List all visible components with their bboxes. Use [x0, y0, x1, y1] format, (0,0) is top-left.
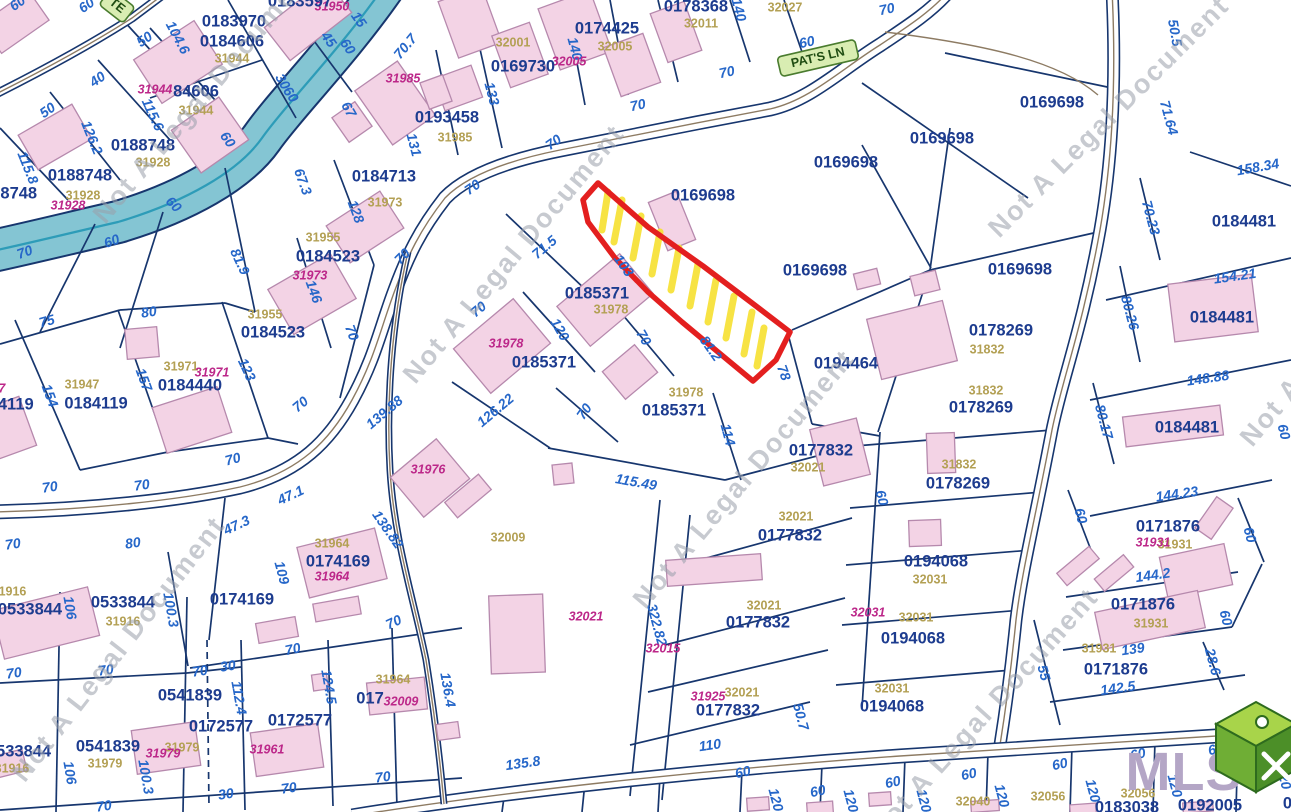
- parcel-id-label[interactable]: 0185371: [642, 401, 706, 419]
- dimension-label: 144.23: [1155, 483, 1200, 505]
- dimension-label: 70: [342, 323, 362, 343]
- address-label-magenta: 31947: [0, 381, 6, 395]
- parcel-boundary-line: [930, 128, 950, 270]
- dimension-label: 67.3: [291, 166, 315, 197]
- dimension-label: 47.1: [274, 482, 307, 509]
- dimension-label: 30: [219, 657, 237, 675]
- parcel-id-label[interactable]: 0541839: [158, 686, 222, 704]
- dimension-label: 70: [223, 449, 242, 469]
- dimension-label: 60: [808, 781, 827, 800]
- parcel-id-label[interactable]: 0169698: [910, 129, 974, 147]
- dimension-label: 80: [124, 534, 142, 552]
- dimension-label: 80: [140, 303, 158, 321]
- dimension-label: 28.6: [1202, 645, 1225, 677]
- address-label-magenta: 32015: [646, 641, 682, 655]
- parcel-id-label[interactable]: 0194068: [904, 552, 968, 570]
- building-footprint: [438, 0, 502, 58]
- address-label-magenta: 32021: [569, 609, 604, 623]
- building-footprint: [552, 463, 574, 485]
- parcel-boundary-line: [1232, 564, 1262, 627]
- building-footprint: [1070, 803, 1097, 812]
- dimension-label: 110: [698, 735, 723, 754]
- dimension-label: 50.7: [790, 701, 813, 733]
- subject-hatch-mark: [602, 192, 608, 230]
- building-footprint: [313, 596, 361, 622]
- building-footprint: [747, 797, 770, 812]
- parcel-boundary-line: [120, 303, 225, 310]
- parcel-id-label[interactable]: 0178269: [926, 474, 990, 492]
- parcel-id-label[interactable]: 0174425: [575, 19, 639, 37]
- address-label-tan: 32021: [791, 460, 826, 474]
- address-label-tan: 31931: [1134, 616, 1169, 630]
- address-label-tan: 31973: [368, 195, 403, 209]
- address-label-magenta: 31985: [386, 71, 422, 85]
- address-label-tan: 32056: [1031, 789, 1066, 803]
- parcel-boundary-line: [80, 452, 168, 470]
- dimension-label: 70: [633, 327, 655, 349]
- dimension-label: 123: [235, 355, 259, 383]
- parcel-boundary-line: [183, 597, 187, 812]
- address-label-magenta: 31973: [293, 268, 328, 282]
- subject-hatch-mark: [726, 296, 734, 338]
- address-label-tan: 32031: [899, 610, 934, 624]
- parcel-id-label[interactable]: 0169698: [783, 261, 847, 279]
- mls-logo: MLS: [1126, 702, 1291, 802]
- parcel-id-label[interactable]: 0184481: [1190, 308, 1254, 326]
- address-label-tan: 32021: [725, 685, 760, 699]
- dimension-label: 70: [628, 95, 647, 114]
- subject-hatch-mark: [744, 312, 752, 354]
- dimension-label: 60: [75, 0, 97, 16]
- parcel-id-label[interactable]: 0541839: [76, 737, 140, 755]
- parcel-id-label[interactable]: 0184523: [241, 323, 305, 341]
- dimension-label: 136.4: [437, 671, 459, 708]
- dimension-label: 70: [133, 476, 151, 494]
- building-footprint: [0, 0, 49, 53]
- dimension-label: 124.5: [318, 668, 340, 705]
- dimension-label: 70: [191, 662, 209, 680]
- parcel-id-label[interactable]: 0194068: [881, 629, 945, 647]
- building-footprint: [807, 801, 834, 812]
- address-label-tan: 32005: [598, 39, 633, 53]
- building-footprint: [853, 268, 880, 289]
- parcel-id-label[interactable]: 0184713: [352, 167, 416, 185]
- dimension-label: 120: [841, 787, 863, 812]
- dimension-label: 75: [37, 311, 56, 331]
- address-label-tan: 31978: [594, 302, 629, 316]
- address-label-tan: 31931: [1082, 641, 1117, 655]
- address-label-tan: 32040: [956, 794, 991, 808]
- dimension-label: 131: [404, 131, 426, 158]
- parcel-id-label[interactable]: 0169698: [814, 153, 878, 171]
- address-label-magenta: 31978: [489, 336, 524, 350]
- parcel-id-label[interactable]: 0533844: [0, 600, 63, 618]
- dimension-label: 133: [482, 80, 504, 107]
- dimension-label: 81.9: [227, 246, 253, 278]
- dimension-label: 114: [718, 422, 739, 448]
- parcel-id-label[interactable]: 0177832: [696, 701, 760, 719]
- dimension-label: 142.5: [1099, 677, 1136, 698]
- building-footprint: [492, 22, 548, 87]
- building-footprint: [867, 300, 958, 379]
- parcel-id-label[interactable]: 0172577: [268, 711, 332, 729]
- dimension-label: 154: [39, 382, 62, 410]
- parcel-id-label[interactable]: 0171876: [1111, 595, 1175, 613]
- building-footprint: [910, 270, 940, 296]
- parcel-id-label[interactable]: 0171876: [1084, 660, 1148, 678]
- parcel-boundary-line: [1070, 746, 1072, 812]
- address-label-tan: 32011: [684, 16, 718, 30]
- address-label-magenta: 31961: [250, 742, 285, 756]
- address-label-magenta: 31944: [138, 82, 173, 96]
- building-footprint: [909, 519, 942, 546]
- dimension-label: 40: [85, 68, 108, 91]
- building-footprint: [1057, 546, 1099, 585]
- address-label-tan: 31985: [438, 130, 473, 144]
- dimension-label: 70: [5, 664, 23, 682]
- parcel-id-label[interactable]: 0188748: [48, 166, 112, 184]
- dimension-label: 30: [217, 785, 235, 803]
- building-footprint: [152, 387, 232, 454]
- dimension-label: 106: [60, 760, 80, 786]
- parcel-boundary-line: [836, 670, 1012, 685]
- address-label-tan: 31955: [306, 230, 341, 244]
- dimension-label: 70.7: [390, 30, 421, 62]
- dimension-label: 70.23: [1139, 199, 1164, 237]
- parcel-id-label[interactable]: 0172577: [189, 717, 253, 735]
- dimension-label: 139.88: [363, 392, 406, 432]
- dimension-label: 109: [272, 559, 294, 586]
- dimension-label: 70: [95, 797, 113, 812]
- address-label-magenta: 31931: [1136, 535, 1171, 549]
- address-label-tan: 31979: [88, 756, 123, 770]
- parcel-boundary-line: [268, 438, 298, 444]
- address-label-tan: 31955: [248, 307, 283, 321]
- parcel-id-label[interactable]: 0177832: [789, 441, 853, 459]
- parcel-id-label[interactable]: 0185371: [565, 284, 629, 302]
- parcel-id-label[interactable]: 0178368: [664, 0, 728, 15]
- parcel-id-label[interactable]: 0169698: [1020, 93, 1084, 111]
- subject-hatch-mark: [652, 232, 660, 274]
- parcel-id-label[interactable]: 0185371: [512, 353, 576, 371]
- address-label-magenta: 32009: [384, 694, 419, 708]
- address-label-tan: 31964: [376, 672, 411, 686]
- dimension-label: 70: [280, 779, 298, 797]
- building-footprint: [602, 345, 657, 400]
- dimension-label: 126.22: [474, 390, 517, 430]
- parcel-map-canvas: 606050104.64050115.6126.2115.83045156060…: [0, 0, 1291, 812]
- parcel-id-label[interactable]: 0184119: [0, 395, 34, 413]
- subject-hatch-mark: [708, 280, 716, 322]
- address-label-tan: 31971: [164, 359, 199, 373]
- parcel-id-label[interactable]: 0174169: [306, 552, 370, 570]
- dimension-label: 70: [374, 768, 392, 786]
- parcel-id-label[interactable]: 0193458: [415, 108, 479, 126]
- parcel-id-label[interactable]: 0178269: [949, 398, 1013, 416]
- dimension-label: 80.17: [1092, 403, 1117, 442]
- parcel-id-label[interactable]: 0177832: [726, 613, 790, 631]
- dimension-label: 70: [717, 62, 736, 81]
- address-label-magenta: 31928: [51, 198, 86, 212]
- parcel-id-label[interactable]: 0184523: [296, 247, 360, 265]
- parcel-id-label[interactable]: 0174169: [210, 590, 274, 608]
- address-label-magenta: 32031: [851, 605, 886, 619]
- parcel-boundary-line: [392, 628, 397, 808]
- subject-hatch-mark: [757, 328, 764, 366]
- dimension-label: 112.4: [228, 680, 250, 716]
- dimension-label: 139: [1120, 639, 1146, 658]
- dimension-label: 60: [959, 764, 978, 783]
- dimension-label: 60: [1050, 754, 1069, 773]
- dimension-label: 80.26: [1118, 294, 1143, 332]
- dimension-label: 70: [383, 611, 404, 632]
- address-label-tan: 31832: [970, 342, 1005, 356]
- parcel-map-svg: 606050104.64050115.6126.2115.83045156060…: [0, 0, 1291, 812]
- address-label-tan: 32031: [875, 681, 910, 695]
- address-label-tan: 32027: [768, 0, 803, 14]
- address-label-tan: 31832: [969, 383, 1004, 397]
- parcel-id-label[interactable]: 0169698: [988, 260, 1052, 278]
- address-label-tan: 31947: [65, 377, 100, 391]
- building-footprint: [256, 617, 299, 644]
- parcel-id-label[interactable]: 0184440: [158, 376, 222, 394]
- dimension-label: 71.64: [1157, 99, 1182, 137]
- address-label-tan: 31964: [315, 536, 350, 550]
- building-footprint: [1094, 555, 1133, 592]
- dimension-label: 135.8: [504, 752, 541, 773]
- parcel-id-label[interactable]: 0188748: [0, 184, 37, 202]
- dimension-label: 70: [283, 639, 302, 658]
- parcel-id-label[interactable]: 017: [356, 689, 384, 707]
- building-footprint: [1195, 497, 1233, 540]
- address-label-magenta: 31979: [146, 746, 181, 760]
- dimension-label: 60: [1072, 506, 1092, 525]
- address-label-magenta: 31964: [315, 569, 350, 583]
- address-label-tan: 32001: [496, 35, 531, 49]
- parcel-boundary-line: [225, 168, 255, 312]
- building-footprint: [125, 327, 159, 360]
- address-label-tan: 31916: [0, 584, 26, 598]
- dimension-label: 140: [729, 0, 751, 23]
- address-label-tan: 32031: [913, 572, 948, 586]
- dimension-label: 115.49: [614, 470, 658, 493]
- parcel-id-label[interactable]: 0177832: [758, 526, 822, 544]
- subject-hatch-mark: [671, 248, 679, 290]
- parcel-id-label[interactable]: 0178269: [969, 321, 1033, 339]
- parcel-id-label[interactable]: 01: [1283, 794, 1291, 812]
- parcel-id-label[interactable]: 0169730: [491, 57, 555, 75]
- dimension-label: 78: [774, 363, 794, 383]
- building-footprint: [489, 594, 546, 674]
- address-label-tan: 31978: [669, 385, 704, 399]
- address-label-tan: 32021: [779, 509, 814, 523]
- dimension-label: 60: [1241, 525, 1261, 544]
- parcel-id-label[interactable]: 0184119: [64, 394, 127, 412]
- parcel-id-label[interactable]: 0171876: [1136, 517, 1200, 535]
- address-label-tan: 32009: [491, 530, 526, 544]
- address-label-tan: 31832: [942, 457, 977, 471]
- dimension-label: 70: [289, 393, 311, 415]
- address-label-magenta: 32005: [552, 54, 588, 68]
- parcel-id-label[interactable]: 0184481: [1212, 212, 1276, 230]
- dimension-label: 148.88: [1186, 367, 1231, 389]
- address-label-magenta: 31976: [411, 462, 447, 476]
- dimension-label: 70: [41, 478, 59, 496]
- building-footprint: [436, 722, 460, 741]
- parcel-boundary-line: [945, 53, 1112, 88]
- parcel-id-label[interactable]: 0169698: [671, 186, 735, 204]
- parcel-id-label[interactable]: 0184481: [1155, 418, 1219, 436]
- dimension-label: 157: [133, 366, 156, 395]
- parcel-id-label[interactable]: 0194068: [860, 697, 924, 715]
- address-label-tan: 32021: [747, 598, 782, 612]
- subject-hatch-mark: [690, 264, 698, 306]
- dimension-label: 70: [877, 0, 896, 18]
- dimension-label: 70: [4, 535, 22, 553]
- parcel-boundary-line: [1050, 675, 1245, 702]
